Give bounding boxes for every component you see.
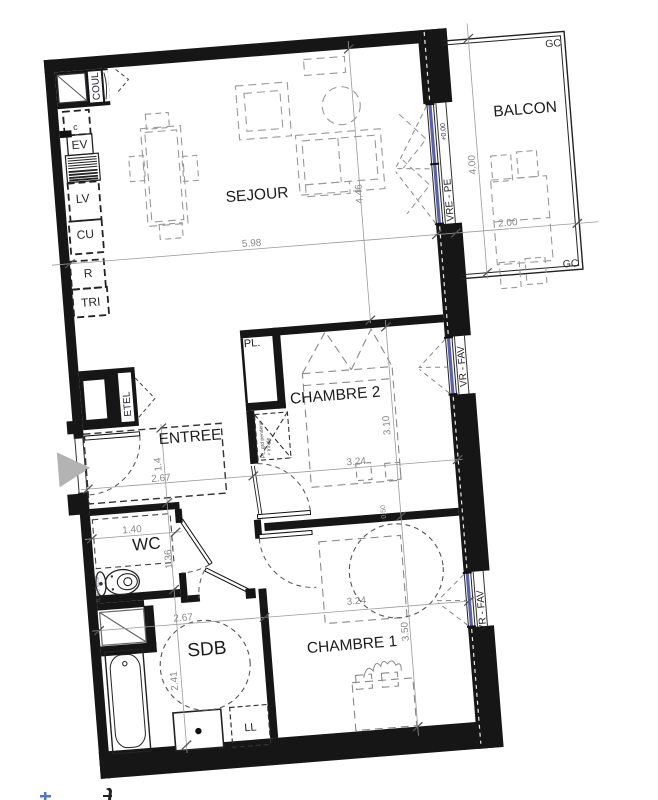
svg-text:EV: EV bbox=[71, 137, 88, 152]
svg-text:ETEL: ETEL bbox=[121, 391, 134, 417]
svg-text:4.00: 4.00 bbox=[467, 154, 480, 175]
svg-text:SDB: SDB bbox=[187, 638, 228, 662]
svg-text:2.41: 2.41 bbox=[169, 670, 182, 691]
svg-text:+0.00: +0.00 bbox=[440, 123, 448, 141]
svg-text:3.10: 3.10 bbox=[381, 415, 394, 436]
svg-text:LV: LV bbox=[75, 191, 90, 206]
svg-text:3.24: 3.24 bbox=[346, 456, 367, 469]
svg-text:2.67: 2.67 bbox=[173, 612, 194, 625]
svg-text:5.98: 5.98 bbox=[242, 237, 263, 250]
svg-text:1.36: 1.36 bbox=[163, 549, 176, 570]
svg-text:1.4: 1.4 bbox=[153, 457, 165, 472]
svg-text:3.50: 3.50 bbox=[399, 621, 412, 642]
svg-text:R: R bbox=[83, 266, 93, 281]
svg-text:4.46: 4.46 bbox=[354, 183, 367, 204]
svg-text:GC: GC bbox=[562, 257, 579, 270]
svg-text:GC: GC bbox=[545, 37, 562, 50]
svg-text:PL.: PL. bbox=[243, 337, 260, 350]
svg-text:WC: WC bbox=[132, 533, 162, 554]
svg-text:TRI: TRI bbox=[81, 294, 101, 309]
svg-text:LL: LL bbox=[244, 721, 257, 734]
svg-text:COUL: COUL bbox=[90, 71, 103, 100]
svg-text:2.00: 2.00 bbox=[498, 217, 519, 230]
svg-text:0.50: 0.50 bbox=[380, 505, 388, 519]
svg-text:2.67: 2.67 bbox=[151, 472, 172, 485]
svg-text:3.24: 3.24 bbox=[346, 595, 367, 608]
svg-text:CU: CU bbox=[76, 227, 94, 242]
